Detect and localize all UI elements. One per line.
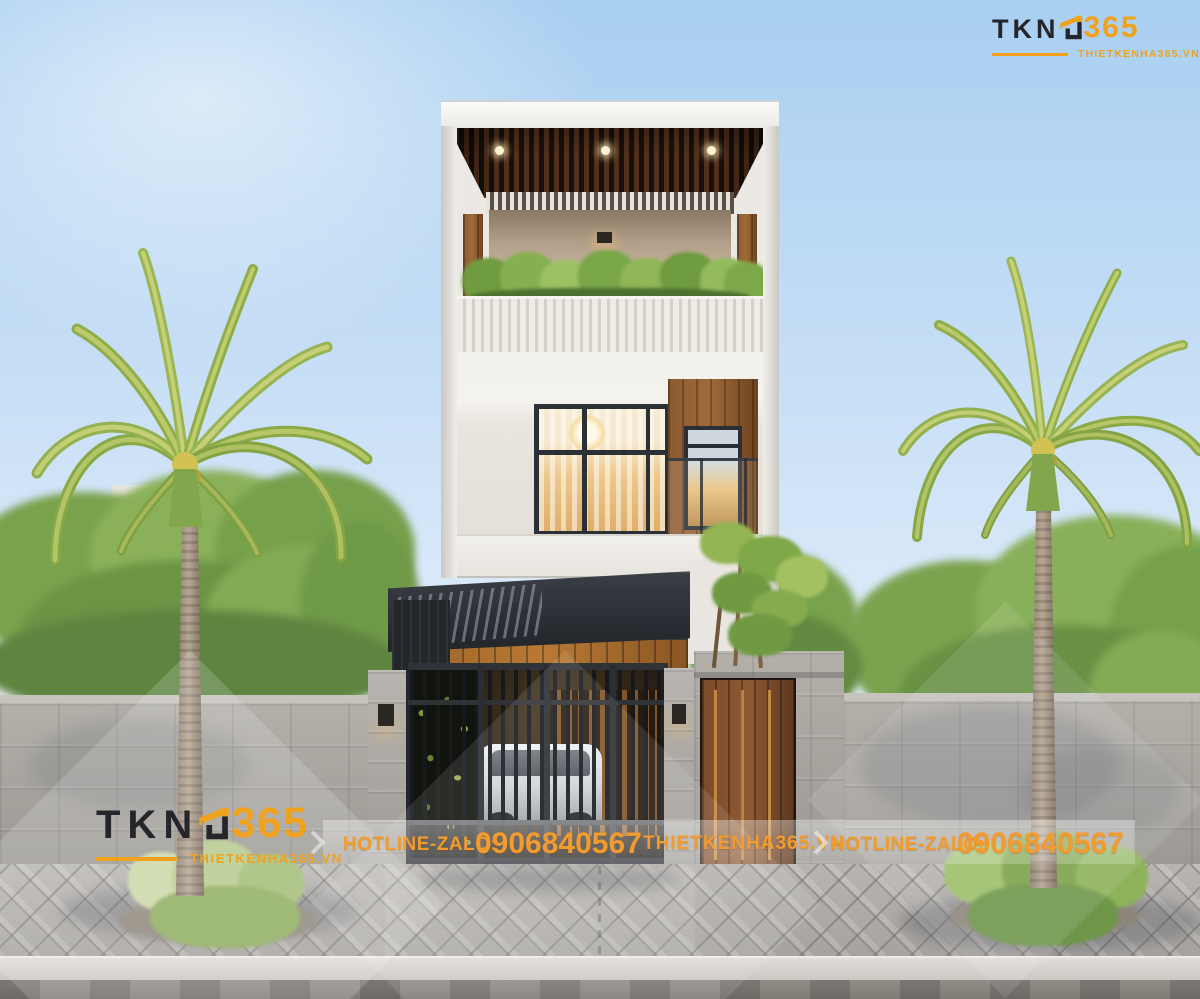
architectural-render: HOTLINE-ZALO: 0906840567 THIETKENHA365.V… bbox=[0, 0, 1200, 999]
crane-excavator-icon bbox=[195, 803, 235, 847]
canopy-downlight bbox=[707, 146, 716, 155]
wall-sconce bbox=[672, 704, 686, 724]
terrace-sconce bbox=[597, 232, 612, 243]
logo-underline bbox=[992, 53, 1068, 56]
logo-text-suffix: 365 bbox=[231, 802, 309, 845]
canopy-downlight bbox=[495, 146, 504, 155]
gate-rail-top bbox=[408, 663, 668, 670]
window-transom-bar bbox=[534, 450, 670, 455]
canopy-downlight bbox=[601, 146, 610, 155]
logo-text-prefix: TKN bbox=[96, 805, 199, 845]
glass-rail-post bbox=[700, 458, 703, 534]
palm-fronds-left bbox=[25, 225, 395, 570]
brand-logo-small: TKN 365 THIETKENHA365.VN bbox=[992, 12, 1200, 60]
hotline-banner: HOTLINE-ZALO: 0906840567 THIETKENHA365.V… bbox=[323, 820, 1135, 864]
window-mullion-v bbox=[646, 404, 650, 536]
logo-underline bbox=[96, 857, 178, 861]
hotline-phone: 0906840567 bbox=[957, 827, 1124, 861]
dracaena-leaves bbox=[728, 614, 792, 656]
hotline-phone: 0906840567 bbox=[475, 827, 642, 861]
logo-website: THIETKENHA365.VN bbox=[1078, 48, 1200, 60]
balcony-railing bbox=[457, 296, 763, 359]
palm-fronds-right bbox=[895, 255, 1200, 585]
side-window-bar bbox=[684, 444, 742, 448]
glass-rail-post bbox=[744, 458, 747, 534]
logo-text-prefix: TKN bbox=[992, 16, 1060, 43]
wall-sconce bbox=[378, 704, 394, 726]
ceiling-lamp-glow bbox=[568, 414, 606, 452]
house-side-edge bbox=[441, 126, 457, 578]
logo-text-suffix: 365 bbox=[1084, 13, 1140, 43]
window-mullion-v bbox=[582, 404, 587, 536]
floor-slab-upper bbox=[441, 352, 779, 381]
logo-website: THIETKENHA365.VN bbox=[190, 851, 343, 866]
roof-canopy-shade bbox=[449, 128, 771, 198]
brand-logo-large: TKN 365 THIETKENHA365.VN bbox=[96, 802, 343, 866]
crane-excavator-icon bbox=[1057, 12, 1087, 45]
